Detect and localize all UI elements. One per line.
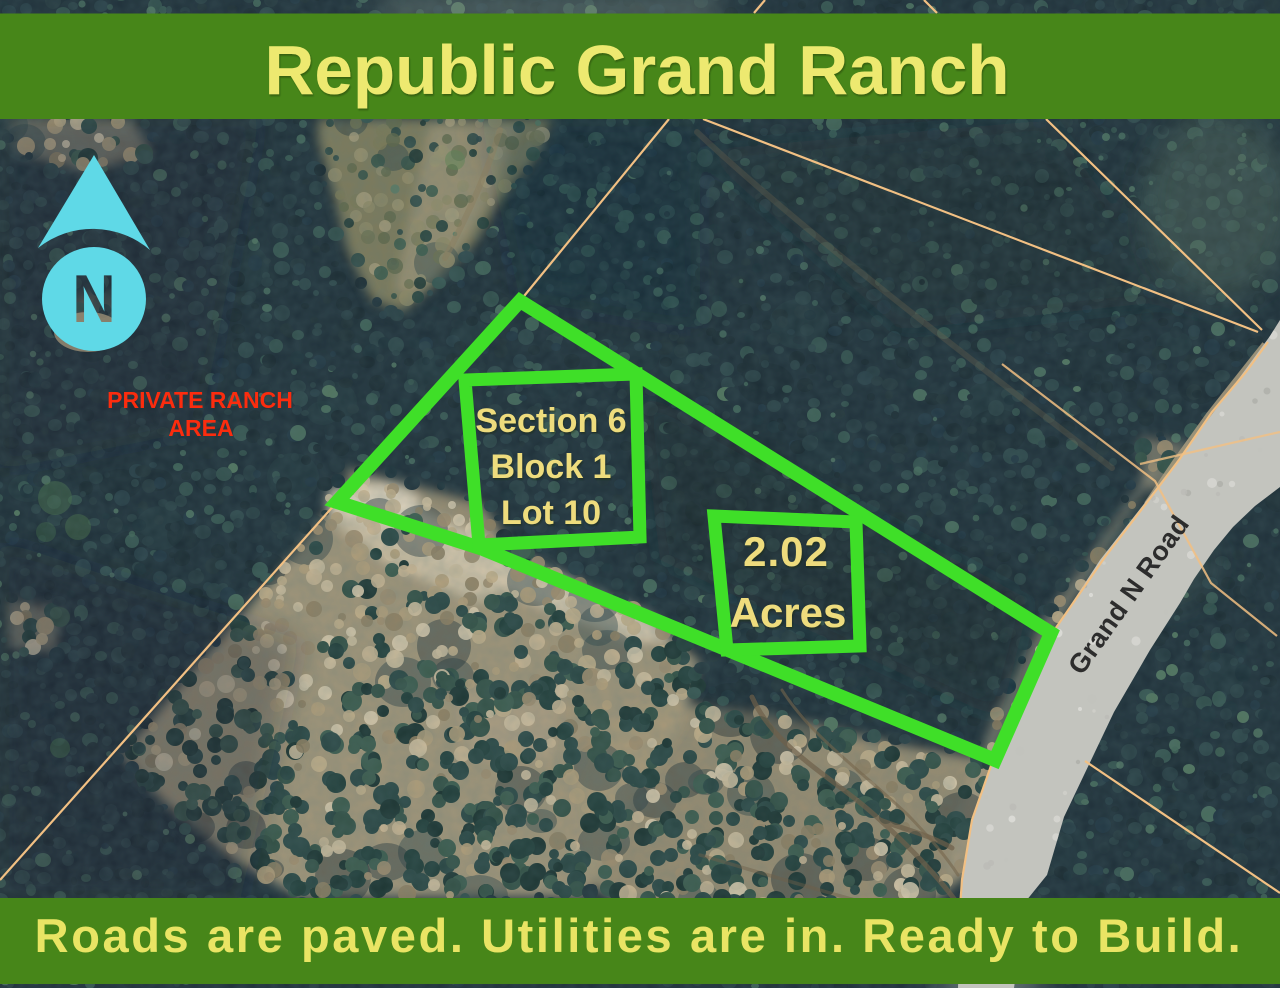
svg-text:AREA: AREA [168, 415, 233, 441]
svg-text:PRIVATE RANCH: PRIVATE RANCH [107, 387, 293, 413]
svg-text:Roads are paved. Utilities are: Roads are paved. Utilities are in. Ready… [35, 909, 1244, 962]
svg-text:Lot 10: Lot 10 [501, 494, 601, 532]
svg-text:Republic Grand Ranch: Republic Grand Ranch [265, 31, 1010, 109]
svg-text:Section 6: Section 6 [475, 402, 626, 440]
svg-text:2.02: 2.02 [743, 528, 829, 575]
svg-text:Acres: Acres [730, 589, 847, 636]
svg-text:Block 1: Block 1 [491, 448, 612, 486]
